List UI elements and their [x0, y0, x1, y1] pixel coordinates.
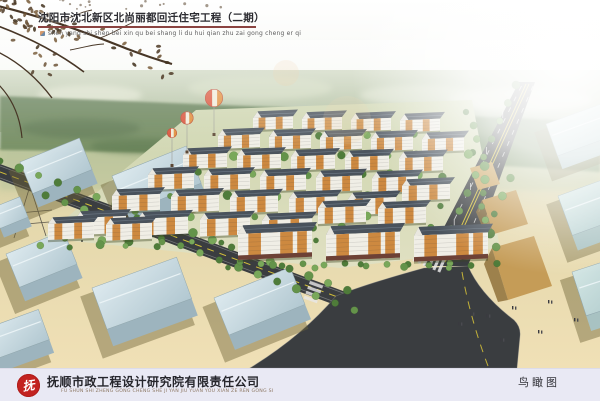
company-logo-icon: 抚: [16, 372, 42, 398]
company-name: 抚顺市政工程设计研究院有限责任公司: [47, 376, 333, 388]
view-label: 鸟瞰图: [518, 374, 560, 390]
aerial-rendering: [0, 0, 600, 401]
pinyin-mark-icon: [40, 31, 45, 36]
title-underline: [38, 26, 256, 28]
company-pinyin: FU SHUN SHI ZHENG GONG CHENG SHE JI YAN …: [61, 389, 273, 394]
project-title-block: 沈阳市沈北新区北尚丽都回迁住宅工程（二期） shen yang shi shen…: [38, 10, 301, 37]
footer-bar: 抚 抚顺市政工程设计研究院有限责任公司 FU SHUN SHI ZHENG GO…: [0, 368, 600, 401]
project-title: 沈阳市沈北新区北尚丽都回迁住宅工程（二期）: [38, 10, 301, 25]
poster: 沈阳市沈北新区北尚丽都回迁住宅工程（二期） shen yang shi shen…: [0, 0, 600, 401]
project-title-pinyin: shen yang shi shen bei xin qu bei shang …: [48, 30, 301, 37]
